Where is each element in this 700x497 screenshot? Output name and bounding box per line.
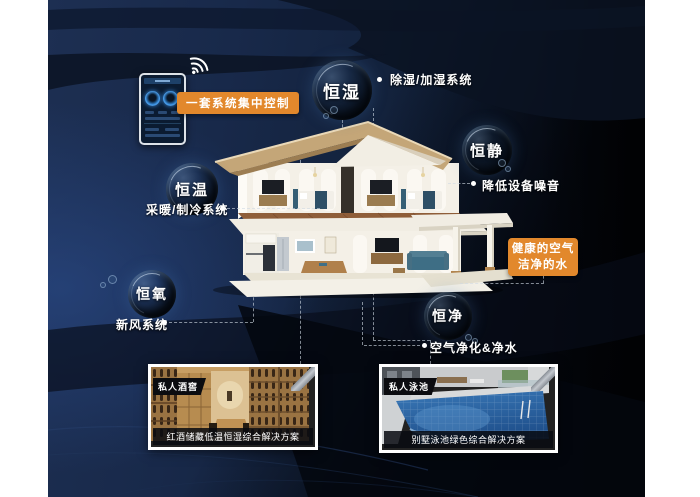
- leader-dot: [220, 206, 225, 211]
- leader-dot: [422, 343, 427, 348]
- pool-photo: 私人泳池 别墅泳池绿色综合解决方案: [382, 367, 555, 450]
- infographic-canvas: 一套系统集中控制 恒湿 恒静 恒温 恒氧 恒净 除湿/加湿系统 降低设备噪音 采…: [48, 0, 645, 497]
- bubble-label: 恒湿: [323, 78, 361, 103]
- bubble-label: 恒氧: [136, 284, 168, 304]
- leader-dot: [471, 181, 476, 186]
- leader-dot: [162, 320, 167, 325]
- bubble-label: 恒静: [470, 140, 504, 161]
- promo-connector-h: [460, 283, 544, 284]
- label-fresh-air: 新风系统: [116, 316, 168, 333]
- decorative-bubble: [505, 166, 511, 172]
- promo-connector-v: [543, 276, 544, 283]
- healthy-air-water-box: 健康的空气 洁净的水: [508, 238, 578, 276]
- label-air-water-purification: 空气净化&净水: [430, 339, 518, 356]
- pool-thumbnail: 私人泳池 别墅泳池绿色综合解决方案: [379, 364, 558, 453]
- bubble-constant-oxygen: 恒氧: [128, 270, 176, 318]
- corner-ribbon-icon: [291, 367, 315, 391]
- bubble-constant-humidity: 恒湿: [312, 60, 372, 120]
- connector-purity-up: [362, 302, 363, 345]
- phone-header-bar: [144, 78, 181, 84]
- corner-ribbon-icon: [531, 367, 555, 391]
- promo-line-2: 洁净的水: [508, 257, 578, 273]
- leader-line: [364, 345, 420, 346]
- wine-cellar-tag: 私人酒窖: [153, 378, 206, 395]
- decorative-bubble: [330, 106, 338, 114]
- decorative-bubble: [100, 282, 106, 288]
- decorative-bubble: [498, 159, 506, 167]
- label-noise-reduction: 降低设备噪音: [482, 177, 560, 194]
- pool-caption: 别墅泳池绿色综合解决方案: [384, 431, 553, 448]
- leader-line: [227, 208, 320, 209]
- wine-cellar-thumbnail: 私人酒窖 红酒储藏低温恒湿综合解决方案: [148, 364, 318, 450]
- decorative-bubble: [323, 113, 329, 119]
- central-control-label: 一套系统集中控制: [177, 92, 299, 114]
- bubble-label: 恒净: [432, 306, 464, 326]
- phone-dial-icon: [163, 91, 178, 106]
- decorative-bubble: [108, 275, 117, 284]
- wine-cellar-photo: 私人酒窖 红酒储藏低温恒湿综合解决方案: [151, 367, 315, 447]
- bubble-constant-purity: 恒净: [424, 292, 472, 340]
- wine-cellar-caption: 红酒储藏低温恒湿综合解决方案: [153, 428, 313, 445]
- label-humidity-system: 除湿/加湿系统: [390, 71, 472, 88]
- promo-line-1: 健康的空气: [508, 241, 578, 257]
- leader-line: [448, 183, 470, 184]
- leader-line: [169, 322, 253, 323]
- pool-tag: 私人泳池: [384, 378, 437, 395]
- infographic-page: 一套系统集中控制 恒湿 恒静 恒温 恒氧 恒净 除湿/加湿系统 降低设备噪音 采…: [0, 0, 700, 497]
- bubble-label: 恒温: [175, 179, 209, 200]
- label-heating-cooling: 采暖/制冷系统: [146, 201, 228, 218]
- leader-dot: [377, 77, 382, 82]
- phone-dial-icon: [145, 91, 160, 106]
- connector-center-jog: [373, 340, 430, 341]
